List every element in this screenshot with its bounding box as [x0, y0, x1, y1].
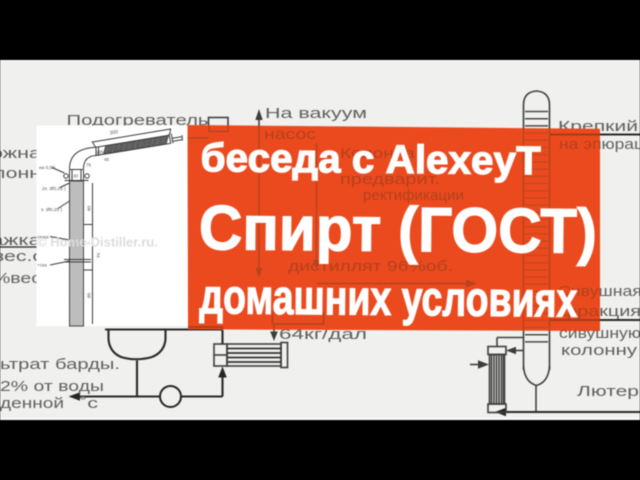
svg-text:˚с: ˚с: [80, 395, 99, 412]
svg-text:+ска: +ска: [37, 263, 47, 268]
svg-text:колонну: колонну: [561, 342, 638, 359]
svg-text:беседа с AlexeyT: беседа с AlexeyT: [200, 136, 540, 183]
svg-text:75: 75: [86, 163, 92, 168]
svg-text:45: 45: [104, 157, 110, 162]
svg-text:85: 85: [87, 292, 93, 298]
svg-text:2х. Ø0,25 ): 2х. Ø0,25 ): [42, 186, 66, 192]
svg-text:денной: денной: [0, 395, 64, 412]
svg-text:2% от воды: 2% от воды: [0, 378, 104, 395]
svg-text:Лютер: Лютер: [577, 383, 639, 400]
svg-text:ожна: ожна: [0, 145, 42, 162]
svg-text:ьтрат барды.: ьтрат барды.: [0, 356, 120, 373]
svg-text:домашних условиях: домашних условиях: [199, 270, 578, 328]
svg-text:ТК: ТК: [96, 252, 101, 258]
svg-text:30: 30: [73, 174, 79, 179]
svg-text:%вес: %вес: [0, 270, 42, 287]
svg-text:80: 80: [87, 205, 93, 211]
svg-text:На вакуум: На вакуум: [265, 105, 367, 122]
svg-text:Спирт (ГОСТ): Спирт (ГОСТ): [199, 193, 598, 267]
svg-text:© Home-Distiller.ru.: © Home-Distiller.ru.: [37, 235, 158, 250]
svg-text:лонн: лонн: [0, 165, 41, 182]
